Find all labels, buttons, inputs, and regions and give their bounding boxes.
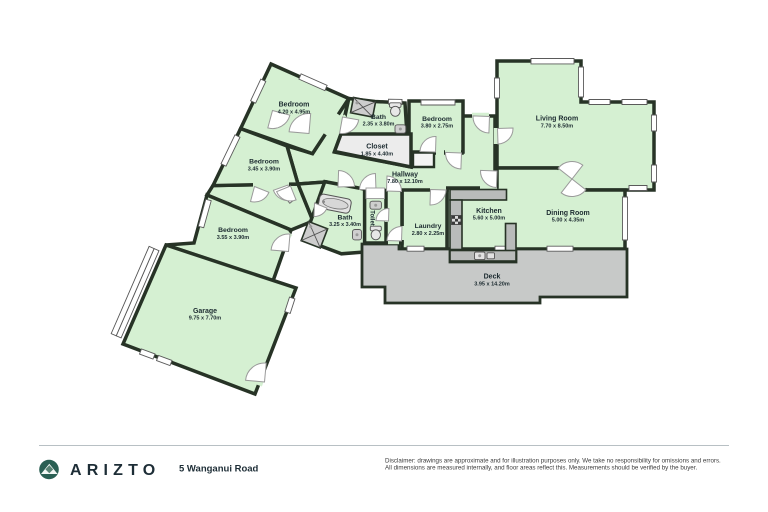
svg-text:Kitchen: Kitchen [476, 208, 502, 215]
svg-text:3.80 x 2.75m: 3.80 x 2.75m [421, 124, 454, 130]
svg-text:3.95 x 14.20m: 3.95 x 14.20m [474, 282, 510, 288]
svg-text:Living Room: Living Room [536, 116, 578, 123]
svg-text:Laundry: Laundry [415, 223, 442, 230]
svg-text:Hallway: Hallway [392, 172, 418, 179]
svg-text:5.60 x 5.00m: 5.60 x 5.00m [473, 216, 506, 222]
svg-text:7.80 x 12.10m: 7.80 x 12.10m [387, 179, 423, 185]
svg-text:Bedroom: Bedroom [249, 159, 279, 166]
svg-text:5 Wanganui Road: 5 Wanganui Road [179, 464, 259, 475]
svg-text:Toilet: Toilet [369, 210, 375, 226]
svg-text:2.35 x 3.80m: 2.35 x 3.80m [363, 122, 395, 128]
svg-text:3.45 x 3.90m: 3.45 x 3.90m [248, 167, 281, 173]
svg-text:Bedroom: Bedroom [279, 102, 310, 109]
svg-text:3.25 x 3.40m: 3.25 x 3.40m [329, 222, 361, 228]
svg-text:All dimensions are measured in: All dimensions are measured internally, … [385, 465, 697, 472]
svg-text:Dining Room: Dining Room [546, 210, 590, 217]
svg-text:Bath: Bath [371, 114, 386, 121]
svg-text:2.80 x 2.25m: 2.80 x 2.25m [412, 231, 445, 237]
svg-text:Bedroom: Bedroom [218, 227, 248, 234]
svg-text:Bath: Bath [337, 215, 352, 222]
svg-text:ARIZTO: ARIZTO [70, 462, 160, 479]
svg-text:3.55 x 3.90m: 3.55 x 3.90m [217, 235, 250, 241]
svg-text:Deck: Deck [484, 274, 501, 281]
svg-text:Garage: Garage [193, 308, 217, 315]
svg-text:5.00 x 4.35m: 5.00 x 4.35m [552, 218, 585, 224]
svg-text:1.85 x 4.40m: 1.85 x 4.40m [361, 152, 394, 158]
svg-text:Disclaimer: drawings are appro: Disclaimer: drawings are approximate and… [385, 458, 721, 465]
svg-text:7.70 x 8.50m: 7.70 x 8.50m [541, 124, 574, 130]
svg-text:9.75 x 7.70m: 9.75 x 7.70m [189, 316, 222, 322]
svg-text:Closet: Closet [366, 144, 388, 151]
svg-text:Bedroom: Bedroom [422, 116, 452, 123]
svg-text:4.20 x 4.95m: 4.20 x 4.95m [278, 110, 311, 116]
